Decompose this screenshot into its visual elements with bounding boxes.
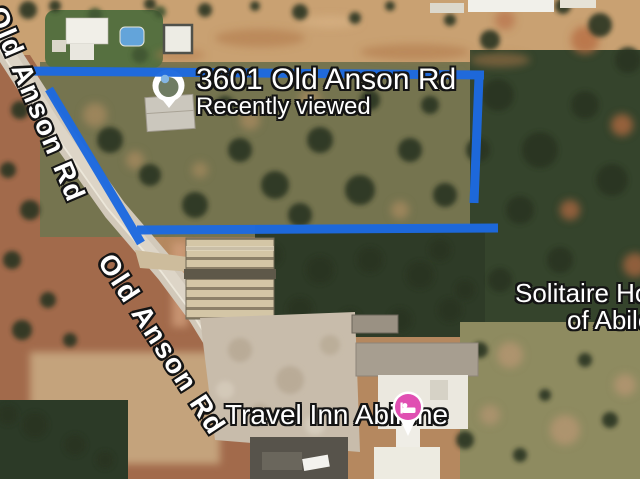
recently-viewed-status: Recently viewed — [196, 95, 456, 119]
property-marker-label[interactable]: 3601 Old Anson Rd Recently viewed — [196, 65, 456, 119]
poi-label-solitaire-line1: Solitaire Homes — [515, 280, 640, 307]
poi-label-solitaire-homes[interactable]: Solitaire Homes of Abilene — [515, 280, 640, 334]
white-shed — [164, 25, 192, 53]
poi-label-solitaire-line2: of Abilene — [567, 307, 640, 334]
recently-viewed-pin-dot — [161, 75, 169, 83]
satellite-map-canvas[interactable]: Old Anson Rd Old Anson Rd 3601 Old Anson… — [0, 0, 640, 479]
swimming-pool — [120, 27, 144, 46]
lodging-pin[interactable] — [389, 390, 427, 438]
property-address: 3601 Old Anson Rd — [196, 65, 456, 95]
